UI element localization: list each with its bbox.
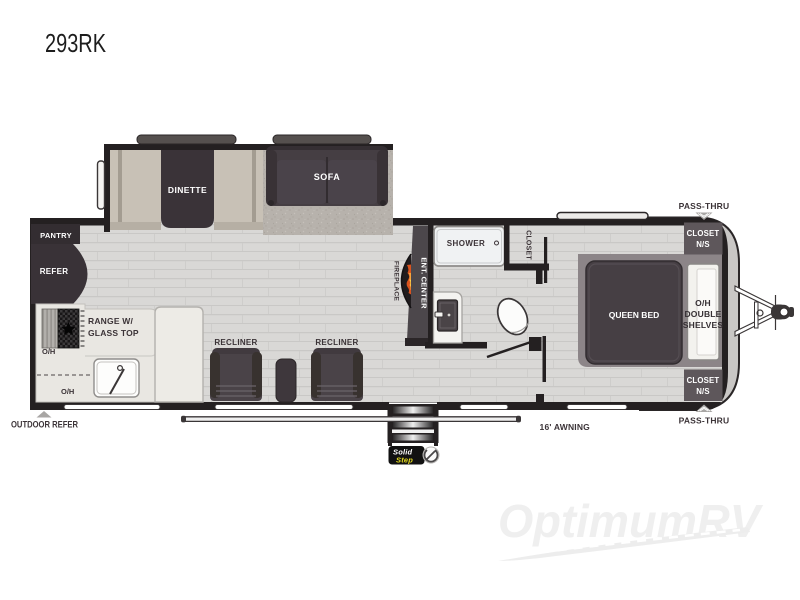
svg-text:ENT. CENTER: ENT. CENTER [420,257,429,309]
svg-text:FIREPLACE: FIREPLACE [393,261,400,302]
svg-text:N/S: N/S [696,240,710,249]
svg-text:OUTDOOR REFER: OUTDOOR REFER [11,420,78,430]
svg-text:O/H: O/H [42,347,55,356]
svg-text:Step: Step [396,456,413,465]
svg-text:293RK: 293RK [45,28,107,58]
svg-text:N/S: N/S [696,387,710,396]
svg-text:SHOWER: SHOWER [447,239,485,248]
svg-text:SHELVES: SHELVES [683,320,724,330]
svg-text:DOUBLE: DOUBLE [684,309,721,319]
svg-text:PASS-THRU: PASS-THRU [679,416,730,426]
svg-text:CLOSET: CLOSET [687,229,720,238]
svg-text:RECLINER: RECLINER [315,338,358,347]
svg-text:RECLINER: RECLINER [214,338,257,347]
svg-text:RANGE W/: RANGE W/ [88,316,133,326]
svg-text:CLOSET: CLOSET [525,230,532,260]
svg-text:REFER: REFER [40,267,69,276]
svg-text:GLASS TOP: GLASS TOP [88,328,139,338]
svg-text:SOFA: SOFA [314,172,341,182]
svg-text:OptimumRV: OptimumRV [498,495,763,547]
svg-text:PANTRY: PANTRY [40,231,72,240]
svg-text:PASS-THRU: PASS-THRU [679,201,730,211]
svg-text:CLOSET: CLOSET [687,376,720,385]
svg-text:O/H: O/H [61,387,74,396]
svg-text:16' AWNING: 16' AWNING [540,422,591,432]
svg-text:O/H: O/H [695,298,711,308]
svg-text:DINETTE: DINETTE [168,185,207,195]
svg-text:QUEEN BED: QUEEN BED [609,310,660,320]
